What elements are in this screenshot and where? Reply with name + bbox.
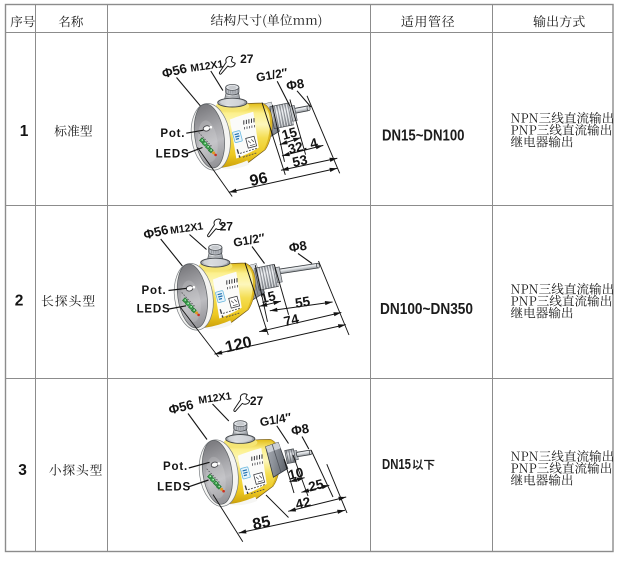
svg-text:Pot.: Pot. (160, 128, 185, 140)
svg-text:Pot.: Pot. (163, 461, 188, 473)
svg-text:85: 85 (251, 513, 272, 533)
svg-text:55: 55 (294, 294, 312, 311)
svg-text:27: 27 (220, 220, 234, 234)
svg-text:LEDS: LEDS (156, 148, 190, 160)
svg-text:2: 2 (15, 292, 24, 309)
svg-text:Φ8: Φ8 (288, 238, 308, 256)
svg-text:Φ8: Φ8 (285, 76, 305, 94)
svg-text:27: 27 (240, 52, 254, 66)
svg-text:DN100~DN350: DN100~DN350 (380, 301, 473, 318)
svg-text:3: 3 (18, 462, 27, 479)
svg-text:1: 1 (20, 123, 29, 140)
svg-text:DN15~DN100: DN15~DN100 (382, 127, 465, 144)
svg-text:Pot.: Pot. (142, 285, 167, 297)
svg-text:LEDS: LEDS (137, 304, 171, 316)
svg-text:27: 27 (250, 394, 264, 408)
svg-text:Φ8: Φ8 (290, 421, 310, 439)
svg-text:DN15: DN15 (382, 456, 411, 473)
svg-text:LEDS: LEDS (157, 481, 191, 493)
